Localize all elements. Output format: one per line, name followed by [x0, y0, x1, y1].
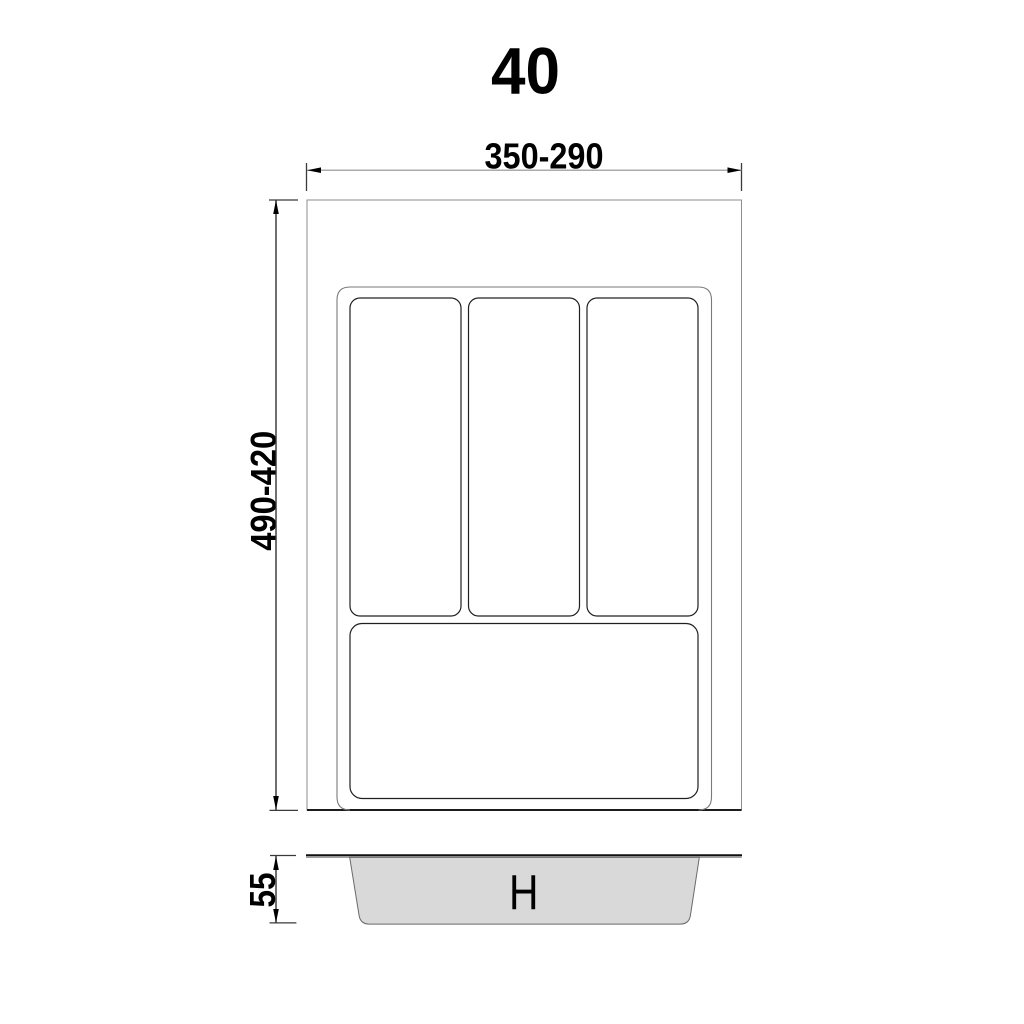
- svg-text:H: H: [509, 866, 539, 920]
- svg-text:40: 40: [491, 34, 560, 108]
- svg-text:490-420: 490-420: [243, 431, 284, 551]
